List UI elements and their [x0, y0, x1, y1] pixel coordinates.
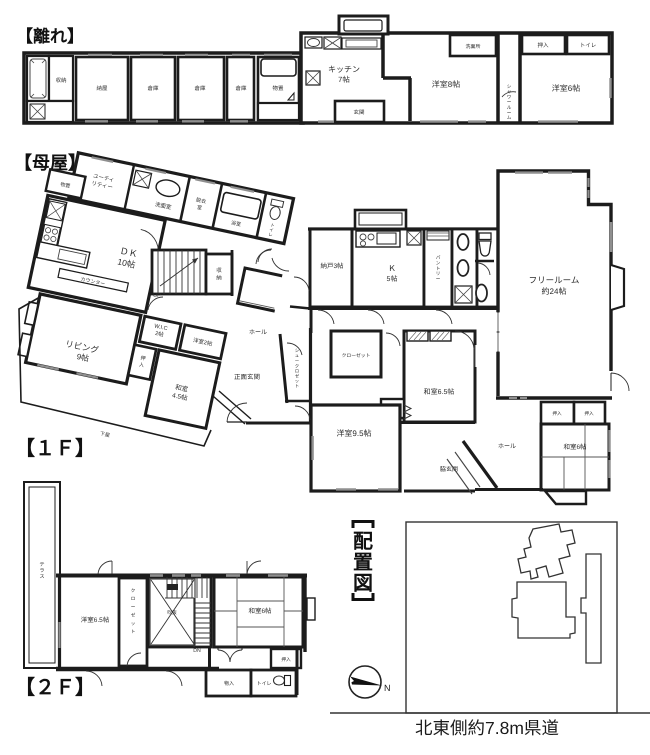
svg-text:納: 納	[216, 275, 222, 282]
svg-text:Ｋ: Ｋ	[388, 264, 396, 273]
svg-text:ー: ー	[436, 277, 441, 282]
svg-text:脇玄関: 脇玄関	[440, 465, 458, 473]
svg-text:和室6帖: 和室6帖	[563, 443, 587, 451]
svg-text:フリールーム: フリールーム	[529, 275, 580, 285]
svg-text:ス: ス	[39, 574, 44, 580]
svg-text:洋室6帖: 洋室6帖	[552, 84, 580, 93]
svg-text:倉庫: 倉庫	[147, 85, 159, 92]
svg-text:押入: 押入	[281, 656, 291, 663]
svg-text:ク: ク	[131, 588, 136, 593]
svg-text:ト: ト	[131, 629, 136, 634]
svg-text:北東側約7.8m県道: 北東側約7.8m県道	[415, 718, 559, 738]
svg-text:N: N	[384, 683, 391, 693]
svg-text:トイレ: トイレ	[580, 42, 597, 49]
svg-text:玄関: 玄関	[353, 109, 365, 116]
svg-text:洋室9.5帖: 洋室9.5帖	[336, 429, 371, 438]
svg-text:納屋: 納屋	[96, 85, 108, 92]
svg-text:約24帖: 約24帖	[542, 287, 567, 296]
svg-text:キッチン: キッチン	[328, 65, 360, 74]
svg-text:納戸3帖: 納戸3帖	[320, 262, 344, 270]
svg-text:リ: リ	[436, 271, 441, 276]
svg-text:押入: 押入	[552, 411, 562, 416]
svg-text:パ: パ	[436, 255, 441, 260]
svg-text:収: 収	[216, 267, 222, 274]
svg-text:5帖: 5帖	[387, 275, 398, 283]
svg-text:ッ: ッ	[131, 621, 136, 626]
svg-text:ム: ム	[507, 115, 512, 120]
svg-text:洗面所: 洗面所	[465, 43, 480, 50]
svg-text:押入: 押入	[584, 411, 594, 416]
svg-text:図: 図	[353, 573, 373, 595]
svg-text:吹抜: 吹抜	[167, 609, 177, 616]
svg-text:クローゼット: クローゼット	[342, 352, 371, 359]
svg-text:押入: 押入	[537, 42, 549, 49]
svg-text:【１Ｆ】: 【１Ｆ】	[15, 437, 95, 460]
svg-text:【離れ】: 【離れ】	[16, 27, 84, 46]
svg-text:洋室6.5帖: 洋室6.5帖	[81, 616, 110, 624]
svg-text:正面玄関: 正面玄関	[234, 373, 260, 381]
svg-text:【２Ｆ】: 【２Ｆ】	[15, 676, 95, 699]
svg-text:ン: ン	[436, 260, 441, 265]
svg-text:トイレ: トイレ	[256, 681, 271, 687]
svg-text:和室6帖: 和室6帖	[248, 607, 272, 615]
svg-text:ト: ト	[436, 266, 441, 271]
svg-text:ホール: ホール	[498, 443, 516, 450]
svg-text:倉庫: 倉庫	[235, 85, 247, 92]
svg-text:ロ: ロ	[131, 596, 136, 601]
svg-text:ト: ト	[295, 384, 299, 389]
svg-text:7帖: 7帖	[338, 75, 350, 84]
svg-text:ゼ: ゼ	[131, 613, 136, 618]
svg-text:収納: 収納	[55, 77, 67, 84]
svg-text:物置: 物置	[272, 85, 284, 92]
svg-text:ホール: ホール	[249, 329, 267, 336]
svg-text:物入: 物入	[224, 680, 234, 687]
svg-text:倉庫: 倉庫	[194, 85, 206, 92]
svg-text:配: 配	[353, 531, 373, 553]
svg-text:洋室8帖: 洋室8帖	[432, 80, 460, 89]
svg-text:DN: DN	[193, 648, 201, 654]
svg-text:UP: UP	[153, 293, 161, 299]
svg-text:ー: ー	[131, 604, 136, 609]
svg-text:置: 置	[353, 552, 373, 574]
svg-text:和室6.5帖: 和室6.5帖	[424, 388, 455, 396]
